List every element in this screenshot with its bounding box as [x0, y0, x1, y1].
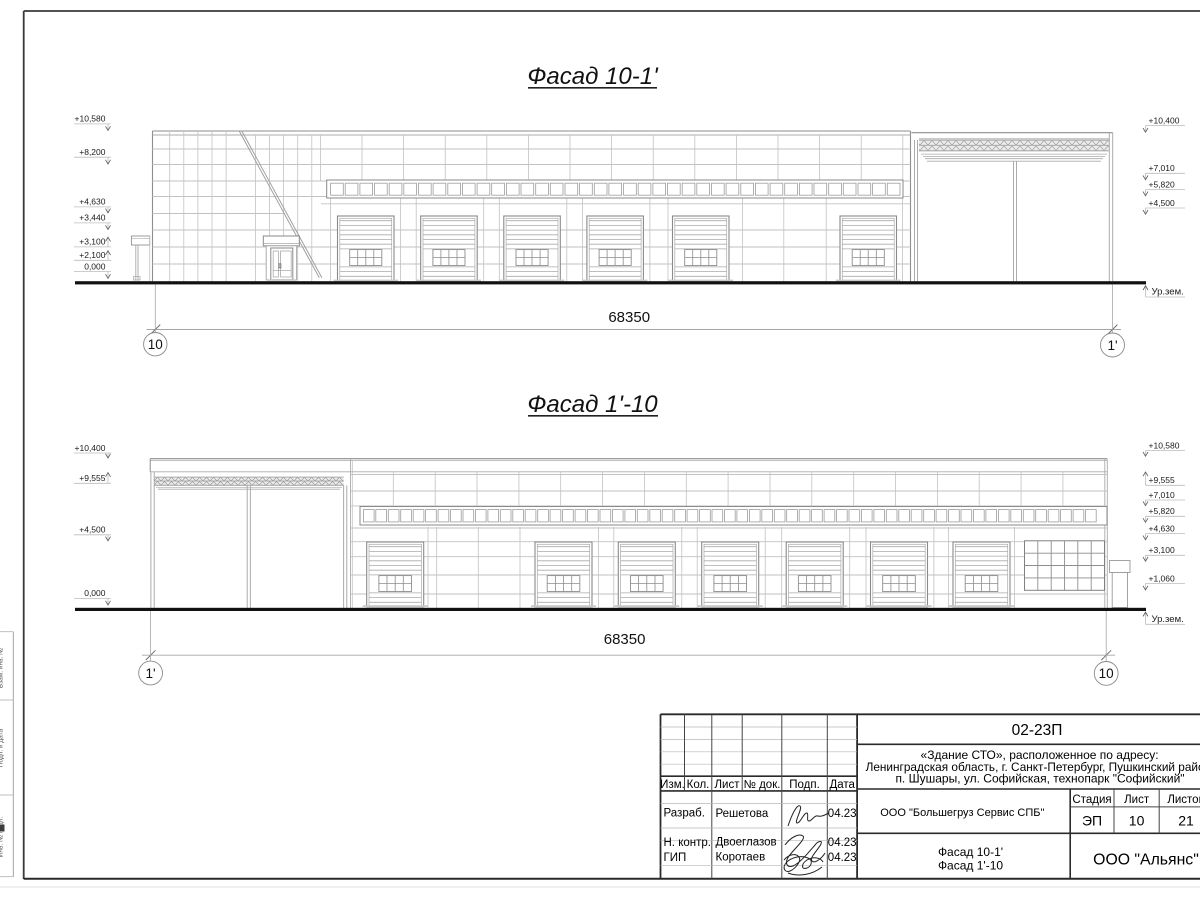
svg-text:10: 10 — [1129, 813, 1145, 829]
svg-text:68350: 68350 — [604, 631, 646, 648]
svg-text:21: 21 — [1178, 813, 1194, 829]
svg-text:+1,060: +1,060 — [1149, 573, 1176, 583]
svg-text:0,000: 0,000 — [84, 261, 106, 271]
svg-text:ООО "Большегруз Сервис СПБ": ООО "Большегруз Сервис СПБ" — [880, 807, 1044, 819]
svg-text:Кол.: Кол. — [687, 779, 710, 791]
svg-text:+5,820: +5,820 — [1149, 179, 1176, 189]
svg-text:Листов: Листов — [1167, 794, 1200, 806]
svg-text:+4,500: +4,500 — [1149, 198, 1176, 208]
svg-text:68350: 68350 — [608, 309, 650, 326]
svg-text:Стадия: Стадия — [1072, 794, 1111, 806]
svg-text:+2,100: +2,100 — [79, 250, 106, 260]
svg-text:ООО "Альянс": ООО "Альянс" — [1093, 851, 1199, 868]
svg-text:0,000: 0,000 — [84, 588, 106, 598]
svg-text:Изм.: Изм. — [660, 779, 685, 791]
svg-text:ЭП: ЭП — [1082, 813, 1102, 829]
svg-text:Ур.зем.: Ур.зем. — [1152, 614, 1184, 625]
svg-text:Фасад 1'-10: Фасад 1'-10 — [938, 858, 1003, 872]
svg-text:+8,200: +8,200 — [79, 147, 106, 157]
svg-text:10: 10 — [1099, 666, 1114, 681]
svg-text:+7,010: +7,010 — [1149, 163, 1176, 173]
svg-text:Дата: Дата — [829, 779, 855, 791]
svg-text:10: 10 — [148, 337, 163, 352]
svg-text:+10,400: +10,400 — [75, 443, 106, 453]
svg-text:Решетова: Решетова — [716, 808, 769, 820]
svg-text:+3,100: +3,100 — [1149, 545, 1176, 555]
svg-text:1': 1' — [1107, 338, 1117, 353]
svg-text:+9,555: +9,555 — [1149, 475, 1176, 485]
svg-text:Фасад 10-1': Фасад 10-1' — [938, 845, 1003, 859]
svg-text:ГИП: ГИП — [664, 852, 687, 864]
svg-text:02-23П: 02-23П — [1012, 722, 1063, 739]
svg-text:Взам. инв. №: Взам. инв. № — [0, 648, 5, 688]
svg-text:Фасад 10-1': Фасад 10-1' — [527, 63, 659, 90]
svg-text:+4,630: +4,630 — [79, 197, 106, 207]
svg-text:+5,820: +5,820 — [1149, 506, 1176, 516]
svg-text:Разраб.: Разраб. — [664, 808, 705, 820]
svg-text:Ур.зем.: Ур.зем. — [1152, 287, 1184, 298]
svg-text:1': 1' — [146, 666, 156, 681]
svg-text:04.23: 04.23 — [828, 852, 857, 864]
svg-text:Фасад 1'-10: Фасад 1'-10 — [527, 391, 658, 418]
svg-text:№ док.: № док. — [744, 779, 781, 791]
svg-text:Двоеглазов: Двоеглазов — [716, 836, 777, 848]
svg-text:п. Шушары, ул. Софийская, техн: п. Шушары, ул. Софийская, технопарк "Соф… — [895, 772, 1184, 786]
svg-text:Подп. и дата: Подп. и дата — [0, 728, 5, 767]
svg-text:+10,580: +10,580 — [1149, 440, 1180, 450]
svg-text:+10,580: +10,580 — [75, 114, 106, 124]
svg-text:04.23: 04.23 — [828, 837, 857, 849]
svg-text:+10,400: +10,400 — [1149, 115, 1180, 125]
svg-text:Лист: Лист — [715, 779, 741, 791]
svg-text:+7,010: +7,010 — [1149, 490, 1176, 500]
svg-text:Подп.: Подп. — [789, 779, 820, 791]
svg-text:Инв. № подл.: Инв. № подл. — [0, 817, 5, 858]
svg-text:Лист: Лист — [1124, 794, 1150, 806]
svg-text:04.23: 04.23 — [828, 808, 857, 820]
svg-text:+4,630: +4,630 — [1149, 523, 1176, 533]
svg-text:Коротаев: Коротаев — [716, 852, 766, 864]
svg-text:+3,100: +3,100 — [79, 237, 106, 247]
svg-text:Н. контр.: Н. контр. — [664, 837, 711, 849]
svg-text:+9,555: +9,555 — [79, 473, 106, 483]
svg-text:+3,440: +3,440 — [79, 213, 106, 223]
svg-text:+4,500: +4,500 — [79, 525, 106, 535]
